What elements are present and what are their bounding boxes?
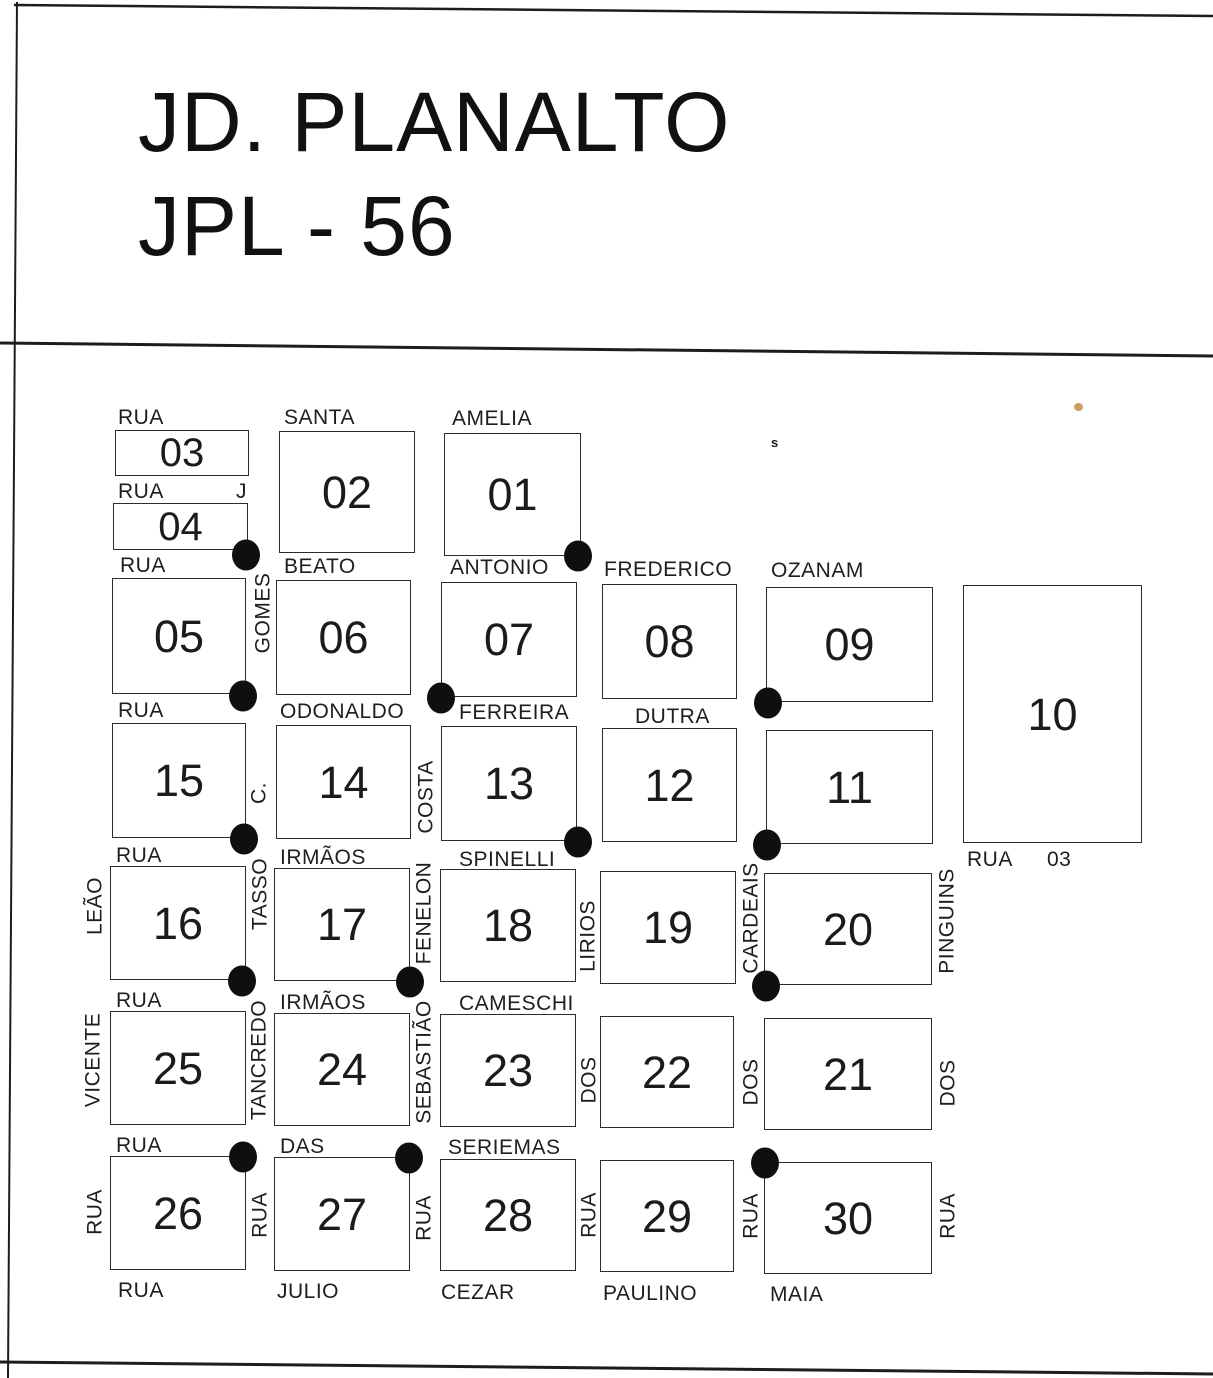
corner-marker-dot <box>230 824 258 855</box>
street-label-vertical-dos: DOS <box>741 1058 762 1105</box>
block-22: 22 <box>600 1016 734 1128</box>
scan-speck: s <box>771 436 778 449</box>
block-number: 24 <box>317 1047 367 1092</box>
street-label-vertical-fenelon: FENELON <box>414 862 435 965</box>
street-label-ozanam: OZANAM <box>771 560 864 581</box>
street-label-vertical-pinguins: PINGUINS <box>937 868 958 974</box>
bottom-border-line <box>0 1362 1213 1374</box>
block-number: 04 <box>158 507 203 547</box>
block-04: 04 <box>113 503 248 550</box>
street-label-vertical-rua: RUA <box>938 1193 959 1239</box>
corner-marker-dot <box>228 966 256 997</box>
corner-marker-dot <box>229 1142 257 1173</box>
street-label-frederico: FREDERICO <box>604 559 732 580</box>
block-number: 11 <box>826 765 873 810</box>
block-21: 21 <box>764 1018 932 1130</box>
block-number: 28 <box>483 1193 533 1238</box>
street-label-cameschi: CAMESCHI <box>459 993 574 1014</box>
block-number: 12 <box>644 763 694 808</box>
street-label-rua: RUA <box>118 700 164 721</box>
block-15: 15 <box>112 723 246 838</box>
block-09: 09 <box>766 587 933 702</box>
block-14: 14 <box>276 725 411 839</box>
street-label-rua: RUA <box>116 845 162 866</box>
street-label-rua: RUA <box>967 849 1013 870</box>
block-number: 08 <box>644 619 694 664</box>
street-label-maia: MAIA <box>770 1284 823 1305</box>
block-01: 01 <box>444 433 581 556</box>
block-number: 16 <box>153 901 203 946</box>
block-number: 07 <box>484 617 534 662</box>
block-number: 13 <box>484 761 534 806</box>
title-divider-line <box>0 343 1213 356</box>
block-number: 30 <box>823 1196 873 1241</box>
block-number: 25 <box>153 1046 203 1091</box>
block-number: 27 <box>317 1192 367 1237</box>
street-label-vertical-costa: COSTA <box>416 760 437 833</box>
block-number: 14 <box>318 760 368 805</box>
street-label-vertical-tasso: TASSO <box>250 858 271 930</box>
block-number: 26 <box>153 1191 203 1236</box>
block-number: 06 <box>318 615 368 660</box>
block-13: 13 <box>441 726 577 841</box>
corner-marker-dot <box>753 830 781 861</box>
block-23: 23 <box>440 1014 576 1127</box>
street-label-vertical-leo: LEÃO <box>85 877 106 935</box>
street-label-rua: RUA <box>118 1280 164 1301</box>
block-11: 11 <box>766 730 933 844</box>
street-label-vertical-rua: RUA <box>579 1192 600 1238</box>
block-28: 28 <box>440 1159 576 1271</box>
street-label-vertical-dos: DOS <box>579 1056 600 1103</box>
street-label-odonaldo: ODONALDO <box>280 701 404 722</box>
street-label-vertical-rua: RUA <box>414 1195 435 1241</box>
corner-marker-dot <box>232 540 260 571</box>
block-24: 24 <box>274 1013 410 1126</box>
street-label-vertical-rua: RUA <box>741 1193 762 1239</box>
block-number: 02 <box>322 470 372 515</box>
block-20: 20 <box>764 873 932 985</box>
corner-marker-dot <box>564 827 592 858</box>
block-number: 05 <box>154 614 204 659</box>
block-07: 07 <box>441 582 577 697</box>
street-label-seriemas: SERIEMAS <box>448 1137 561 1158</box>
block-19: 19 <box>600 871 736 984</box>
block-12: 12 <box>602 728 737 842</box>
block-number: 01 <box>487 472 537 517</box>
map-code: JPL - 56 <box>138 184 456 268</box>
top-border-line <box>14 5 1213 16</box>
street-label-vertical-sebastio: SEBASTIÃO <box>414 1000 435 1124</box>
corner-marker-dot <box>396 967 424 998</box>
street-label-vertical-lirios: LIRIOS <box>578 900 599 972</box>
block-number: 29 <box>642 1194 692 1239</box>
block-29: 29 <box>600 1160 734 1272</box>
block-number: 03 <box>160 433 205 473</box>
street-label-rua: RUA <box>116 1135 162 1156</box>
block-number: 20 <box>823 907 873 952</box>
street-label-paulino: PAULINO <box>603 1283 697 1304</box>
block-30: 30 <box>764 1162 932 1274</box>
scanned-block-map-page: JD. PLANALTO JPL - 56 030402010506070809… <box>0 0 1213 1378</box>
corner-marker-dot <box>427 683 455 714</box>
corner-marker-dot <box>395 1143 423 1174</box>
block-number: 18 <box>483 903 533 948</box>
block-number: 10 <box>1027 692 1077 737</box>
block-number: 21 <box>823 1052 873 1097</box>
street-label-vertical-vicente: VICENTE <box>83 1013 104 1108</box>
block-05: 05 <box>112 578 246 694</box>
block-08: 08 <box>602 584 737 699</box>
block-26: 26 <box>110 1156 246 1270</box>
street-label-rua: RUA <box>116 990 162 1011</box>
block-27: 27 <box>274 1157 410 1271</box>
street-label-cezar: CEZAR <box>441 1282 515 1303</box>
street-label-vertical-c: C. <box>249 782 270 804</box>
street-label-julio: JULIO <box>277 1281 339 1302</box>
street-label-beato: BEATO <box>284 556 356 577</box>
street-label-vertical-tancredo: TANCREDO <box>249 1000 270 1120</box>
block-03: 03 <box>115 430 249 476</box>
block-number: 15 <box>154 758 204 803</box>
corner-marker-dot <box>564 541 592 572</box>
street-label-rua: RUA <box>118 481 164 502</box>
street-label-irmos: IRMÃOS <box>280 847 366 868</box>
block-number: 19 <box>643 905 693 950</box>
corner-marker-dot <box>751 1148 779 1179</box>
corner-marker-dot <box>752 971 780 1002</box>
street-label-das: DAS <box>280 1136 325 1157</box>
street-label-vertical-gomes: GOMES <box>253 573 274 654</box>
block-02: 02 <box>279 431 415 553</box>
block-18: 18 <box>440 869 576 982</box>
street-label-antonio: ANTONIO <box>450 557 549 578</box>
street-label-rua: RUA <box>118 407 164 428</box>
street-label-vertical-rua: RUA <box>85 1189 106 1235</box>
corner-marker-dot <box>229 681 257 712</box>
street-label-vertical-dos: DOS <box>938 1059 959 1106</box>
street-label-santa: SANTA <box>284 407 355 428</box>
block-10: 10 <box>963 585 1142 843</box>
block-number: 17 <box>317 902 367 947</box>
block-16: 16 <box>110 866 246 980</box>
block-number: 23 <box>483 1048 533 1093</box>
block-17: 17 <box>274 868 410 981</box>
left-border-line <box>8 2 17 1378</box>
street-label-ferreira: FERREIRA <box>459 702 569 723</box>
street-label-vertical-rua: RUA <box>250 1192 271 1238</box>
corner-marker-dot <box>754 688 782 719</box>
street-label-j: J <box>236 481 247 502</box>
street-label-rua: RUA <box>120 555 166 576</box>
street-label-vertical-cardeais: CARDEAIS <box>741 862 762 973</box>
street-label-spinelli: SPINELLI <box>459 849 555 870</box>
scan-fleck <box>1074 403 1083 411</box>
block-number: 09 <box>824 622 874 667</box>
street-label-03: 03 <box>1047 849 1071 870</box>
map-title: JD. PLANALTO <box>138 80 730 164</box>
block-number: 22 <box>642 1050 692 1095</box>
street-label-irmos: IRMÃOS <box>280 992 366 1013</box>
block-06: 06 <box>276 580 411 695</box>
street-label-dutra: DUTRA <box>635 706 710 727</box>
block-25: 25 <box>110 1011 246 1125</box>
street-label-amelia: AMELIA <box>452 408 532 429</box>
